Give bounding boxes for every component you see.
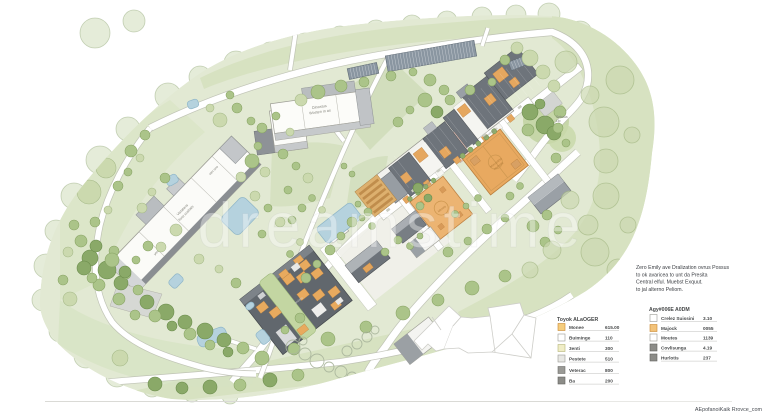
svg-text:Hurlotis: Hurlotis bbox=[661, 356, 679, 361]
svg-text:4.19: 4.19 bbox=[703, 346, 713, 351]
svg-text:AEpofanoiKaik Rrovce_com: AEpofanoiKaik Rrovce_com bbox=[695, 407, 763, 413]
svg-text:to jal alterno Peliom.: to jal alterno Peliom. bbox=[636, 287, 683, 293]
svg-text:Lip: Lip bbox=[556, 119, 561, 123]
svg-text:Zero Emily ave Dralization ovr: Zero Emily ave Dralization ovrus Possus bbox=[636, 265, 730, 271]
svg-text:Toyok ALaOGER: Toyok ALaOGER bbox=[557, 317, 598, 323]
svg-text:Covlisunga: Covlisunga bbox=[661, 346, 687, 351]
svg-text:0055: 0055 bbox=[703, 326, 714, 331]
svg-text:1139: 1139 bbox=[703, 336, 714, 341]
svg-text:dreamstime: dreamstime bbox=[197, 191, 586, 261]
svg-text:Central elful. Muebst Exquut.: Central elful. Muebst Exquut. bbox=[636, 280, 703, 286]
svg-text:200: 200 bbox=[605, 379, 613, 384]
svg-text:3.10: 3.10 bbox=[703, 316, 713, 321]
svg-text:Moutes: Moutes bbox=[661, 336, 678, 341]
svg-text:3enti: 3enti bbox=[569, 346, 580, 351]
svg-text:Agy#006E A0DM: Agy#006E A0DM bbox=[649, 307, 690, 313]
svg-text:to ok avaricea to unt da Presi: to ok avaricea to unt da Presita bbox=[636, 272, 708, 278]
svg-text:Majock: Majock bbox=[661, 326, 677, 331]
svg-text:Veterac: Veterac bbox=[569, 368, 586, 373]
svg-text:615.00: 615.00 bbox=[605, 325, 620, 330]
svg-text:300: 300 bbox=[605, 346, 613, 351]
svg-text:110: 110 bbox=[605, 336, 613, 341]
svg-text:Crelez Suissini: Crelez Suissini bbox=[661, 316, 694, 321]
svg-text:Pestete: Pestete bbox=[569, 357, 586, 362]
svg-text:Monee: Monee bbox=[569, 325, 584, 330]
svg-text:800: 800 bbox=[605, 368, 613, 373]
svg-text:Ba: Ba bbox=[569, 379, 575, 384]
svg-text:510: 510 bbox=[605, 357, 613, 362]
svg-text:Buiminge: Buiminge bbox=[569, 336, 591, 341]
svg-text:237: 237 bbox=[703, 356, 711, 361]
